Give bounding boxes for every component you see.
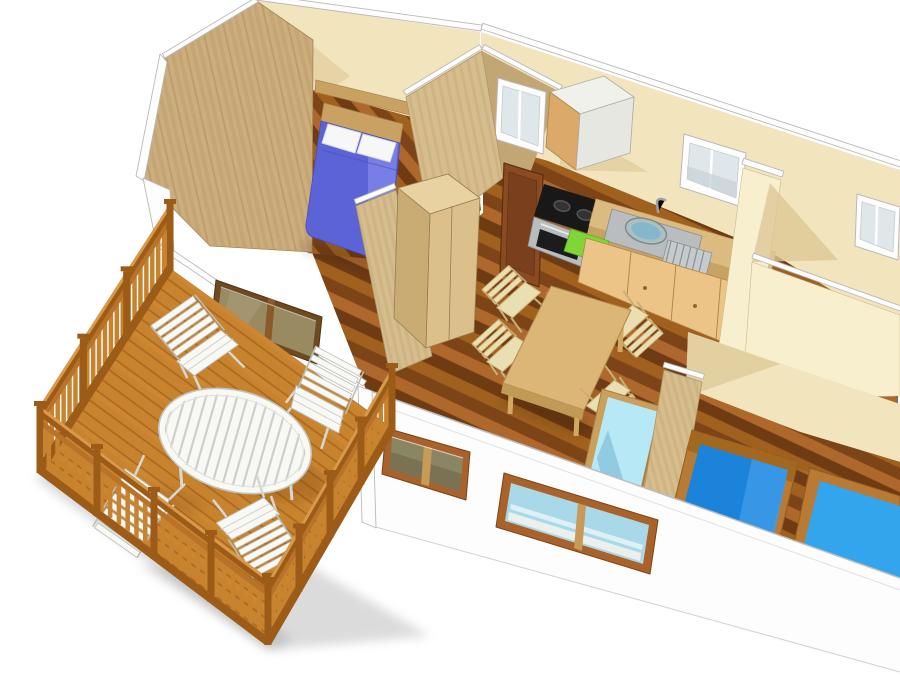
upper-cabinet bbox=[546, 76, 634, 170]
wardrobe bbox=[394, 174, 480, 348]
floorplan-render bbox=[0, 0, 900, 675]
mobile-home-3d-floorplan bbox=[0, 0, 900, 675]
